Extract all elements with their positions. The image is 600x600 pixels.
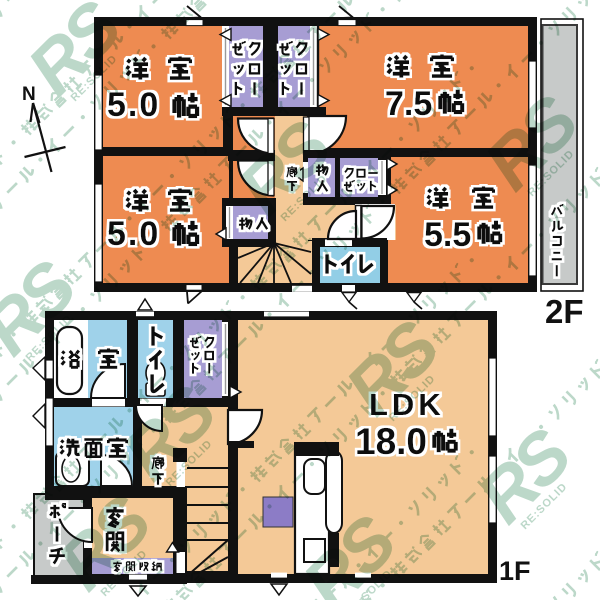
svg-text:5.0: 5.0 (107, 215, 160, 253)
svg-text:5.0: 5.0 (107, 86, 160, 124)
svg-text:18.0: 18.0 (355, 421, 427, 462)
svg-text:1F: 1F (499, 556, 531, 586)
svg-text:N: N (22, 84, 36, 105)
svg-text:7.5: 7.5 (385, 85, 432, 123)
svg-text:5.5: 5.5 (424, 216, 471, 254)
svg-text:2F: 2F (545, 293, 584, 330)
